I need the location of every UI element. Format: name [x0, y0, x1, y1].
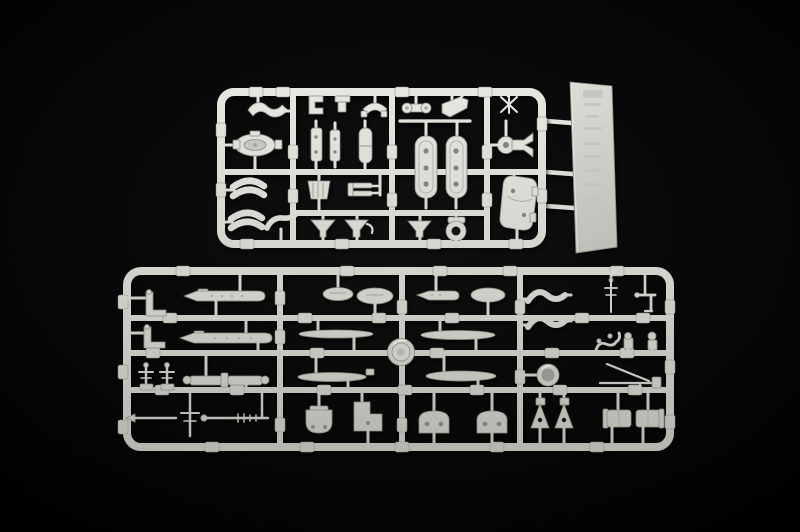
- ejector-pad: [445, 313, 459, 323]
- ejector-pad: [427, 239, 441, 249]
- plate-embossed-ridge: [585, 169, 599, 172]
- part-step-block: [366, 421, 370, 425]
- part-deck-strip-1: [231, 295, 233, 297]
- plate-embossed-ridge: [584, 127, 602, 130]
- part-deck-strip-2: [250, 337, 252, 339]
- part-gun-barrels: [183, 376, 191, 384]
- part-hull-bracket-1: [423, 181, 428, 186]
- ejector-pad: [515, 300, 525, 314]
- ejector-pad: [636, 313, 650, 323]
- part-strip-plate-2: [333, 137, 336, 140]
- plate-embossed-ridge: [585, 225, 599, 228]
- ejector-pad: [240, 239, 254, 249]
- part-deck-strip-1: [211, 295, 213, 297]
- ejector-pad: [665, 360, 675, 374]
- part-range-tripod-2: [161, 384, 174, 390]
- ejector-pad: [482, 193, 492, 207]
- part-deck-strip-2: [214, 337, 216, 339]
- ejector-pad: [430, 348, 444, 358]
- ejector-pad: [503, 266, 517, 276]
- part-funnel-housing: [522, 213, 526, 217]
- part-float-3: [471, 288, 505, 302]
- plate-embossed-ridge: [585, 142, 600, 145]
- part-bollard-2: [648, 332, 656, 340]
- part-winch: [424, 106, 428, 110]
- ejector-pad: [515, 370, 525, 384]
- part-turntable-disc: [388, 339, 415, 366]
- plate-embossed-ridge: [585, 197, 600, 200]
- ejector-pad: [216, 183, 226, 197]
- ejector-pad: [118, 295, 128, 309]
- part-bridge-house-2: [497, 422, 502, 427]
- part-rail-fork: [348, 183, 353, 196]
- ejector-pad: [665, 415, 675, 429]
- part-float-large: [357, 288, 393, 304]
- part-davit-1: [147, 290, 152, 295]
- plate-gate-stub: [546, 172, 573, 174]
- part-clamp-t: [338, 102, 346, 112]
- part-windlass: [306, 410, 332, 433]
- part-bridge-house-1: [425, 422, 430, 427]
- ejector-pad: [176, 266, 190, 276]
- part-windlass: [323, 425, 327, 429]
- ejector-pad: [118, 365, 128, 379]
- part-funnel-housing: [511, 189, 515, 193]
- ejector-pad: [398, 385, 412, 395]
- ejector-pad: [387, 145, 397, 159]
- part-ring-mount: [452, 227, 461, 236]
- part-deck-strip-1: [241, 295, 243, 297]
- part-winch: [405, 106, 409, 110]
- plate-embossed-ridge: [585, 115, 599, 118]
- part-bridge-house-1: [439, 422, 444, 427]
- ejector-pad: [275, 291, 285, 305]
- ejector-pad: [205, 442, 219, 452]
- part-prop-blade-1: [298, 373, 366, 382]
- part-support-frame-1: [536, 398, 545, 405]
- part-bollard-1: [625, 333, 632, 340]
- ejector-pad: [288, 145, 298, 159]
- ejector-pad: [397, 300, 407, 314]
- part-bridge-house-1: [419, 411, 449, 433]
- ejector-pad: [275, 418, 285, 432]
- ejector-pad: [335, 239, 349, 249]
- part-saddle: [361, 111, 367, 117]
- part-strip-plate-1: [314, 150, 317, 153]
- part-saddle: [381, 111, 387, 117]
- plate-embossed-ridge: [584, 103, 601, 106]
- ejector-pad: [590, 442, 604, 452]
- part-turntable-disc: [397, 348, 405, 356]
- plate-embossed-ridge: [586, 237, 598, 240]
- part-range-tripod-1: [140, 384, 153, 390]
- part-hull-bracket-2: [453, 165, 458, 170]
- ejector-pad: [230, 385, 244, 395]
- part-gun-mount: [233, 140, 240, 149]
- ejector-pad: [665, 300, 675, 314]
- part-deck-block-2: [636, 410, 662, 427]
- part-gun-mount: [275, 140, 282, 149]
- ejector-pad: [216, 123, 226, 137]
- plate-gate-stub: [546, 206, 574, 208]
- part-deck-strip-1: [221, 295, 223, 297]
- ejector-pad: [395, 442, 409, 452]
- ejector-pad: [395, 87, 409, 97]
- part-deck-block-2: [659, 409, 664, 428]
- plate-embossed-ridge: [584, 183, 602, 186]
- ejector-pad: [397, 418, 407, 432]
- part-strip-plate-1: [311, 128, 322, 161]
- part-searchlight: [542, 369, 555, 382]
- part-funnel-housing: [530, 213, 536, 222]
- plate-embossed-ridge: [583, 90, 603, 98]
- part-pipe-curl: [608, 334, 612, 338]
- ejector-pad: [537, 189, 547, 203]
- plate-embossed-ridge: [584, 155, 601, 158]
- part-strip-plate-1: [311, 121, 322, 168]
- ejector-pad: [300, 442, 314, 452]
- part-rod-straight: [652, 377, 661, 388]
- part-hull-bracket-1: [423, 148, 428, 153]
- part-vent-grille: [308, 181, 330, 199]
- ejector-pad: [146, 348, 160, 358]
- part-deck-strip-1: [184, 291, 265, 301]
- scene-canvas: [0, 0, 800, 532]
- part-support-frame-1: [538, 418, 542, 422]
- ejector-pad: [275, 330, 285, 344]
- ejector-pad: [537, 117, 547, 131]
- part-prop-blade-1: [366, 369, 374, 375]
- part-funnel-housing: [532, 187, 538, 196]
- part-gun-barrels: [228, 376, 262, 385]
- ejector-pad: [276, 87, 290, 97]
- part-clamp-t: [335, 96, 350, 102]
- part-prop-blade-2: [426, 371, 496, 381]
- part-gun-barrels: [190, 376, 222, 385]
- part-strip-plate-1: [314, 135, 317, 138]
- part-boat-hull: [431, 294, 433, 296]
- part-bridge-house-2: [477, 411, 507, 433]
- part-gun-barrels: [261, 376, 269, 384]
- part-float-small: [323, 288, 353, 301]
- plate-gate-stub: [546, 121, 572, 123]
- ejector-pad: [118, 420, 128, 434]
- ejector-pad: [482, 145, 492, 159]
- part-gun-mount: [250, 131, 260, 136]
- part-bollard-2: [648, 340, 657, 350]
- ejector-pad: [288, 189, 298, 203]
- ejector-pad: [575, 313, 589, 323]
- part-support-frame-2: [560, 398, 569, 405]
- part-deck-strip-2: [238, 337, 240, 339]
- part-pipe-curl: [597, 339, 601, 343]
- ejector-pad: [478, 87, 492, 97]
- part-hull-bracket-1: [423, 165, 428, 170]
- part-hull-bracket-2: [453, 148, 458, 153]
- part-strip-plate-2: [330, 130, 340, 161]
- part-gun-barrels: [221, 373, 228, 387]
- part-deck-strip-2: [226, 337, 228, 339]
- part-boom-1: [299, 330, 373, 338]
- ejector-pad: [249, 87, 263, 97]
- part-boat-hull: [439, 294, 441, 296]
- ejector-pad: [340, 266, 354, 276]
- part-bridge-house-2: [483, 422, 488, 427]
- plate-embossed-ridge: [584, 211, 601, 214]
- part-yoke: [503, 142, 509, 148]
- part-support-frame-2: [562, 418, 566, 422]
- ejector-pad: [545, 348, 559, 358]
- part-hull-bracket-2: [453, 181, 458, 186]
- part-boom-2: [421, 331, 495, 340]
- part-gun-mount: [253, 143, 257, 147]
- ejector-pad: [298, 313, 312, 323]
- ejector-pad: [387, 193, 397, 207]
- part-davit-2: [145, 325, 150, 330]
- part-strip-plate-2: [333, 150, 336, 153]
- part-windlass: [311, 425, 315, 429]
- photo-model-kit-sprues: Photograph of two light-grey injection-m…: [0, 0, 800, 532]
